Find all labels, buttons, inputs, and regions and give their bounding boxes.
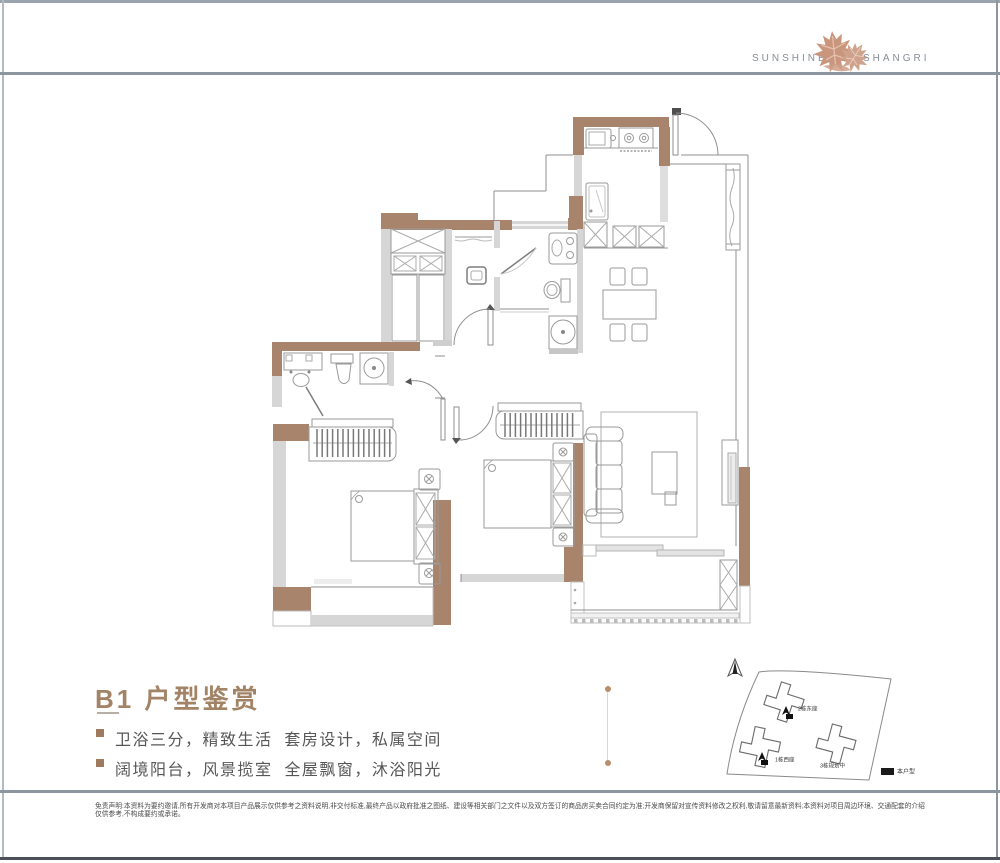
svg-text:本户型: 本户型: [897, 767, 915, 775]
svg-text:1栋西座: 1栋西座: [775, 755, 795, 763]
